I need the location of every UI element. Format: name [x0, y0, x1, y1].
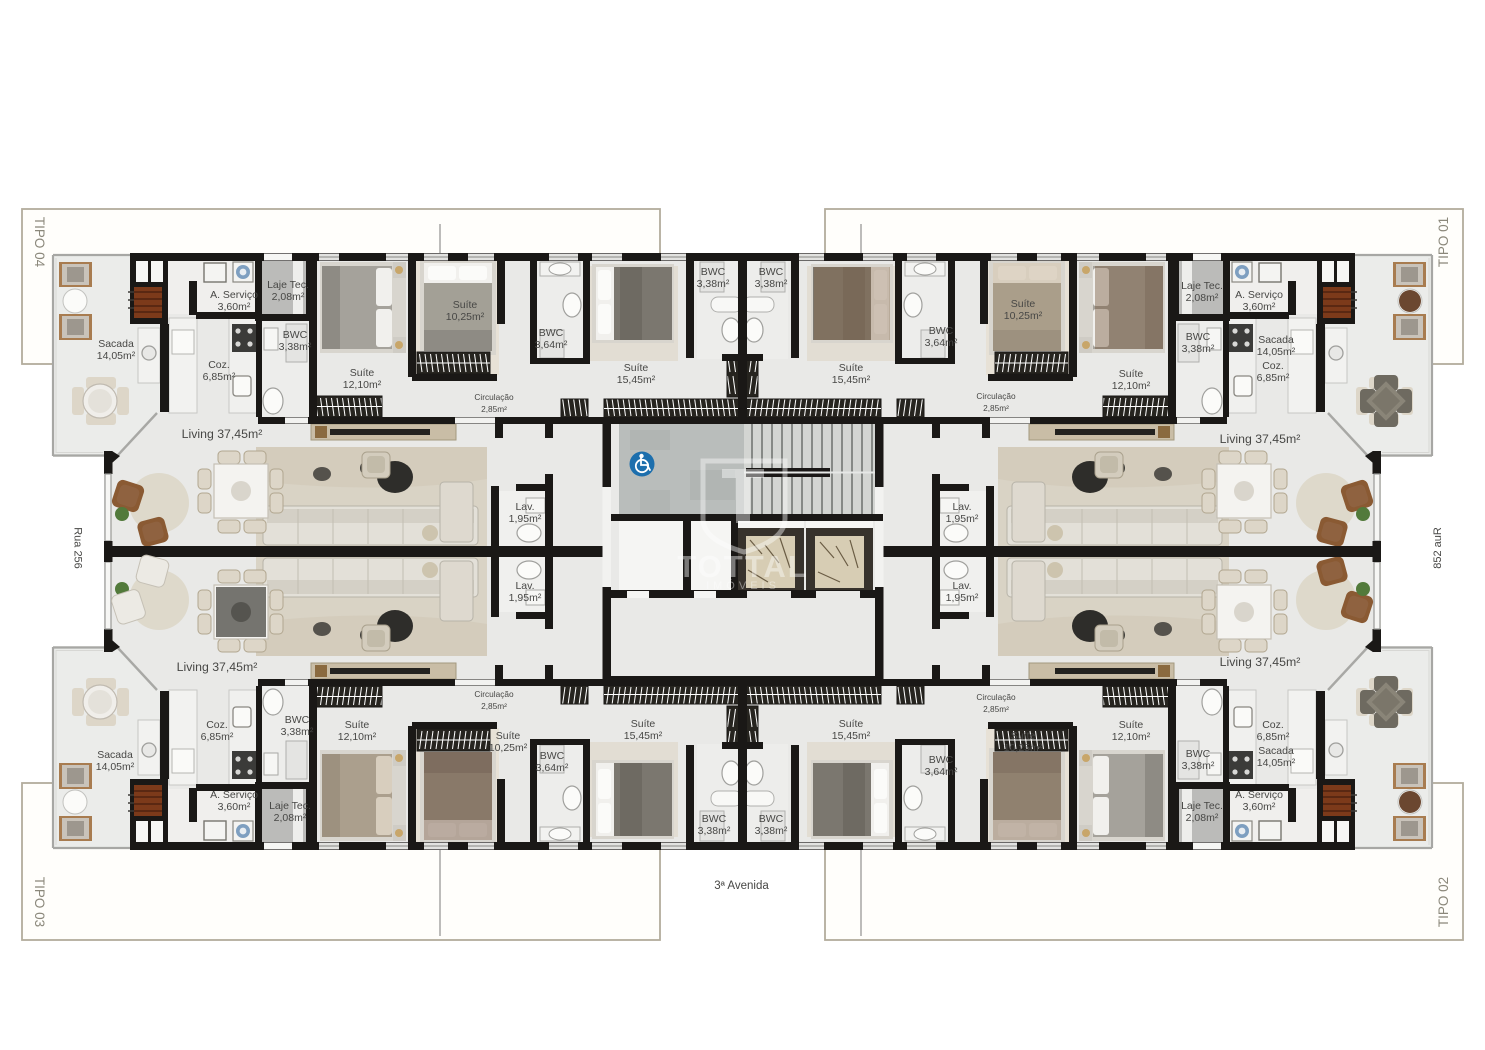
svg-text:BWC: BWC	[702, 813, 727, 825]
svg-text:3,64m²: 3,64m²	[925, 766, 958, 778]
svg-text:15,45m²: 15,45m²	[832, 374, 871, 386]
svg-text:Suíte: Suíte	[839, 718, 864, 730]
svg-text:3,38m²: 3,38m²	[755, 825, 788, 837]
svg-text:2,85m²: 2,85m²	[481, 701, 507, 711]
svg-text:Coz.: Coz.	[1262, 360, 1284, 372]
svg-text:TIPO 02: TIPO 02	[1436, 877, 1451, 927]
svg-text:Suíte: Suíte	[345, 719, 370, 731]
svg-text:Sacada: Sacada	[97, 749, 133, 761]
svg-text:15,45m²: 15,45m²	[617, 374, 656, 386]
svg-text:Suíte: Suíte	[1011, 298, 1036, 310]
svg-text:3,64m²: 3,64m²	[536, 762, 569, 774]
svg-text:Sacada: Sacada	[1258, 745, 1294, 757]
svg-text:TIPO 04: TIPO 04	[32, 217, 47, 268]
svg-text:Living 37,45m²: Living 37,45m²	[1220, 655, 1301, 669]
svg-text:2,85m²: 2,85m²	[983, 704, 1009, 714]
svg-text:3,38m²: 3,38m²	[1182, 760, 1215, 772]
svg-text:BWC: BWC	[759, 266, 784, 278]
svg-text:14,05m²: 14,05m²	[1257, 757, 1296, 769]
svg-text:BWC: BWC	[929, 325, 954, 337]
svg-text:15,45m²: 15,45m²	[832, 730, 871, 742]
svg-text:2,08m²: 2,08m²	[272, 291, 305, 303]
svg-text:Laje Tec.: Laje Tec.	[1181, 800, 1223, 812]
svg-text:1,95m²: 1,95m²	[946, 592, 979, 604]
svg-text:Suíte: Suíte	[496, 730, 521, 742]
svg-text:BWC: BWC	[929, 754, 954, 766]
svg-text:3,38m²: 3,38m²	[698, 825, 731, 837]
svg-text:1,95m²: 1,95m²	[946, 513, 979, 525]
svg-text:14,05m²: 14,05m²	[96, 761, 135, 773]
svg-text:14,05m²: 14,05m²	[97, 350, 136, 362]
svg-text:Coz.: Coz.	[1262, 719, 1284, 731]
svg-text:Suíte: Suíte	[350, 367, 375, 379]
svg-text:Suíte: Suíte	[453, 299, 478, 311]
svg-text:TOTTAL: TOTTAL	[677, 549, 808, 584]
svg-text:3,38m²: 3,38m²	[755, 278, 788, 290]
svg-text:6,85m²: 6,85m²	[1257, 372, 1290, 384]
svg-text:Laje Tec.: Laje Tec.	[267, 279, 309, 291]
svg-text:A. Serviço: A. Serviço	[210, 289, 258, 301]
svg-text:Circulação: Circulação	[474, 689, 514, 699]
svg-text:Laje Tec.: Laje Tec.	[1181, 280, 1223, 292]
svg-text:BWC: BWC	[701, 266, 726, 278]
svg-text:Coz.: Coz.	[206, 719, 228, 731]
svg-text:14,05m²: 14,05m²	[1257, 346, 1296, 358]
svg-text:12,10m²: 12,10m²	[1112, 380, 1151, 392]
svg-text:3,60m²: 3,60m²	[218, 801, 251, 813]
svg-text:3,38m²: 3,38m²	[697, 278, 730, 290]
svg-text:BWC: BWC	[1186, 331, 1211, 343]
svg-text:Circulação: Circulação	[474, 392, 514, 402]
svg-text:Suíte: Suíte	[1011, 730, 1036, 742]
svg-text:3,60m²: 3,60m²	[1243, 801, 1276, 813]
svg-text:3,64m²: 3,64m²	[535, 339, 568, 351]
svg-text:3,60m²: 3,60m²	[1243, 301, 1276, 313]
svg-text:A. Serviço: A. Serviço	[210, 789, 258, 801]
svg-text:Laje Tec.: Laje Tec.	[269, 800, 311, 812]
svg-text:1,95m²: 1,95m²	[509, 592, 542, 604]
svg-text:10,25m²: 10,25m²	[489, 742, 528, 754]
svg-text:3,38m²: 3,38m²	[279, 341, 312, 353]
svg-text:12,10m²: 12,10m²	[343, 379, 382, 391]
svg-text:BWC: BWC	[539, 327, 564, 339]
svg-text:BWC: BWC	[283, 329, 308, 341]
svg-text:Living 37,45m²: Living 37,45m²	[182, 427, 263, 441]
svg-text:Suíte: Suíte	[631, 718, 656, 730]
svg-text:2,85m²: 2,85m²	[481, 404, 507, 414]
svg-text:Lav.: Lav.	[515, 501, 534, 513]
svg-text:852 auR: 852 auR	[1432, 527, 1444, 569]
svg-text:12,10m²: 12,10m²	[338, 731, 377, 743]
svg-text:Circulação: Circulação	[976, 391, 1016, 401]
svg-text:TIPO 01: TIPO 01	[1436, 217, 1451, 267]
svg-text:Sacada: Sacada	[98, 338, 134, 350]
svg-text:BWC: BWC	[540, 750, 565, 762]
svg-text:Suíte: Suíte	[624, 362, 649, 374]
svg-text:IMÓVEIS: IMÓVEIS	[706, 579, 780, 592]
svg-text:BWC: BWC	[1186, 748, 1211, 760]
svg-text:2,08m²: 2,08m²	[1186, 812, 1219, 824]
svg-text:2,08m²: 2,08m²	[1186, 292, 1219, 304]
svg-text:Living 37,45m²: Living 37,45m²	[177, 660, 258, 674]
svg-text:BWC: BWC	[759, 813, 784, 825]
svg-text:Suíte: Suíte	[839, 362, 864, 374]
svg-text:6,85m²: 6,85m²	[1257, 731, 1290, 743]
svg-text:10,25m²: 10,25m²	[446, 311, 485, 323]
svg-text:3,38m²: 3,38m²	[1182, 343, 1215, 355]
svg-text:2,85m²: 2,85m²	[983, 403, 1009, 413]
svg-text:3ª Avenida: 3ª Avenida	[714, 880, 769, 892]
svg-text:Suíte: Suíte	[1119, 368, 1144, 380]
svg-text:6,85m²: 6,85m²	[201, 731, 234, 743]
svg-text:Circulação: Circulação	[976, 692, 1016, 702]
svg-text:Lav.: Lav.	[952, 501, 971, 513]
svg-text:10,25m²: 10,25m²	[1004, 742, 1043, 754]
svg-text:15,45m²: 15,45m²	[624, 730, 663, 742]
svg-text:A. Serviço: A. Serviço	[1235, 289, 1283, 301]
svg-text:1,95m²: 1,95m²	[509, 513, 542, 525]
svg-text:Rua 256: Rua 256	[72, 527, 84, 569]
svg-text:6,85m²: 6,85m²	[203, 371, 236, 383]
svg-text:Living 37,45m²: Living 37,45m²	[1220, 432, 1301, 446]
svg-text:3,38m²: 3,38m²	[281, 726, 314, 738]
svg-text:Suíte: Suíte	[1119, 719, 1144, 731]
svg-text:Coz.: Coz.	[208, 359, 230, 371]
svg-text:2,08m²: 2,08m²	[274, 812, 307, 824]
svg-text:3,60m²: 3,60m²	[218, 301, 251, 313]
svg-text:10,25m²: 10,25m²	[1004, 310, 1043, 322]
svg-text:BWC: BWC	[285, 714, 310, 726]
svg-text:Lav.: Lav.	[952, 580, 971, 592]
svg-text:12,10m²: 12,10m²	[1112, 731, 1151, 743]
svg-text:Lav.: Lav.	[515, 580, 534, 592]
svg-text:Sacada: Sacada	[1258, 334, 1294, 346]
svg-text:TIPO 03: TIPO 03	[32, 877, 47, 927]
svg-text:3,64m²: 3,64m²	[925, 337, 958, 349]
svg-text:A. Serviço: A. Serviço	[1235, 789, 1283, 801]
